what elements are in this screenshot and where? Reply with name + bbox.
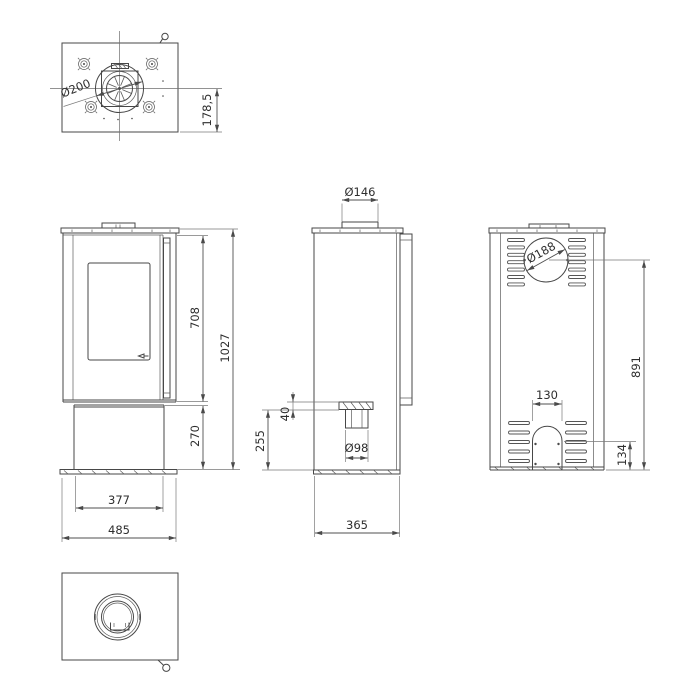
dim-front-total-height: 1027	[218, 333, 232, 362]
dim-side-depth: 365	[346, 518, 368, 532]
mount-boss	[143, 101, 155, 113]
handle-rail-caps-side	[400, 240, 412, 398]
mount-boss	[78, 58, 90, 70]
flue-collar-front	[102, 223, 135, 228]
bottom-view-outline	[62, 573, 178, 660]
dim-back-arch-width: 130	[536, 388, 558, 402]
dim-front-total-width: 485	[108, 523, 130, 537]
dim-side-top-flue-diameter: Ø146	[344, 185, 375, 199]
dim-front-upper-height: 708	[188, 307, 202, 329]
body-sides	[63, 233, 176, 402]
damper-bracket	[111, 623, 130, 631]
base-hatch-side	[318, 471, 392, 474]
arch-dot	[534, 463, 536, 465]
dim-side-air-inlet-diameter: Ø98	[345, 441, 369, 455]
reference-dots	[103, 80, 164, 120]
vent-slots-lower	[509, 422, 587, 463]
arch-dot	[557, 443, 559, 445]
top-plate-side	[312, 228, 403, 233]
stove-dimension-drawing: Ø200 178,5 708 1027 270	[0, 0, 700, 700]
dim-side-inlet-axis-height: 255	[253, 430, 267, 452]
technical-drawing-sheet: Ø200 178,5 708 1027 270	[0, 0, 700, 700]
side-view: Ø146 40 255 Ø98 365	[253, 185, 412, 537]
collar-hatch	[116, 225, 120, 228]
inlet-pipe-ribs	[352, 410, 363, 429]
mount-boss	[85, 101, 97, 113]
front-view: 708 1027 270 377 485	[60, 223, 240, 542]
inlet-flange	[339, 402, 373, 410]
door-glass	[88, 263, 150, 360]
door-bottom-lines	[63, 400, 176, 402]
base-plate	[60, 470, 177, 475]
handle-rail-side	[400, 234, 412, 405]
dim-back-rear-flue-axis-height: 891	[629, 356, 643, 378]
plate-hatch-side	[320, 230, 396, 233]
top-view: Ø200 178,5	[50, 31, 222, 141]
mount-boss	[146, 58, 158, 70]
top-plate	[61, 228, 179, 233]
body-back-outline	[490, 233, 604, 470]
inlet-flange-hatch	[343, 403, 371, 410]
plate-hatch	[72, 230, 170, 233]
dim-front-base-height: 270	[188, 425, 202, 447]
arch-dot	[534, 443, 536, 445]
latch-icon	[139, 354, 149, 358]
base-plate-side	[314, 470, 401, 474]
bottom-view	[62, 573, 178, 671]
pull-ring-icon	[163, 664, 170, 671]
body-side	[314, 233, 400, 470]
lid-handle-back	[529, 224, 569, 228]
dim-back-arch-height: 134	[615, 444, 629, 466]
dim-back-rear-flue-diameter: Ø188	[524, 239, 558, 266]
door-handle-rail	[164, 238, 171, 398]
knob-icon	[162, 33, 168, 39]
dim-side-inlet-collar-height: 40	[278, 407, 292, 422]
damper-bracket-tabs	[114, 623, 126, 627]
handle-hatch-back	[540, 225, 556, 228]
dim-top-flue-axis-offset: 178,5	[200, 94, 214, 127]
flue-collar-side	[342, 222, 378, 228]
plinth-box	[74, 405, 164, 469]
top-plate-back	[489, 228, 605, 233]
dim-front-inner-width: 377	[108, 493, 130, 507]
inlet-ring-inner	[104, 603, 132, 631]
pull-cord	[158, 660, 164, 665]
handle-rail-caps	[164, 243, 171, 393]
inlet-pipe	[346, 410, 369, 429]
plate-hatch-back	[497, 230, 597, 233]
arch-dot	[557, 463, 559, 465]
back-view: Ø188 130 891	[489, 224, 650, 470]
dim-top-flue-diameter: Ø200	[59, 76, 93, 101]
collar-ext-lines	[342, 204, 378, 223]
base-hatch	[64, 471, 166, 474]
